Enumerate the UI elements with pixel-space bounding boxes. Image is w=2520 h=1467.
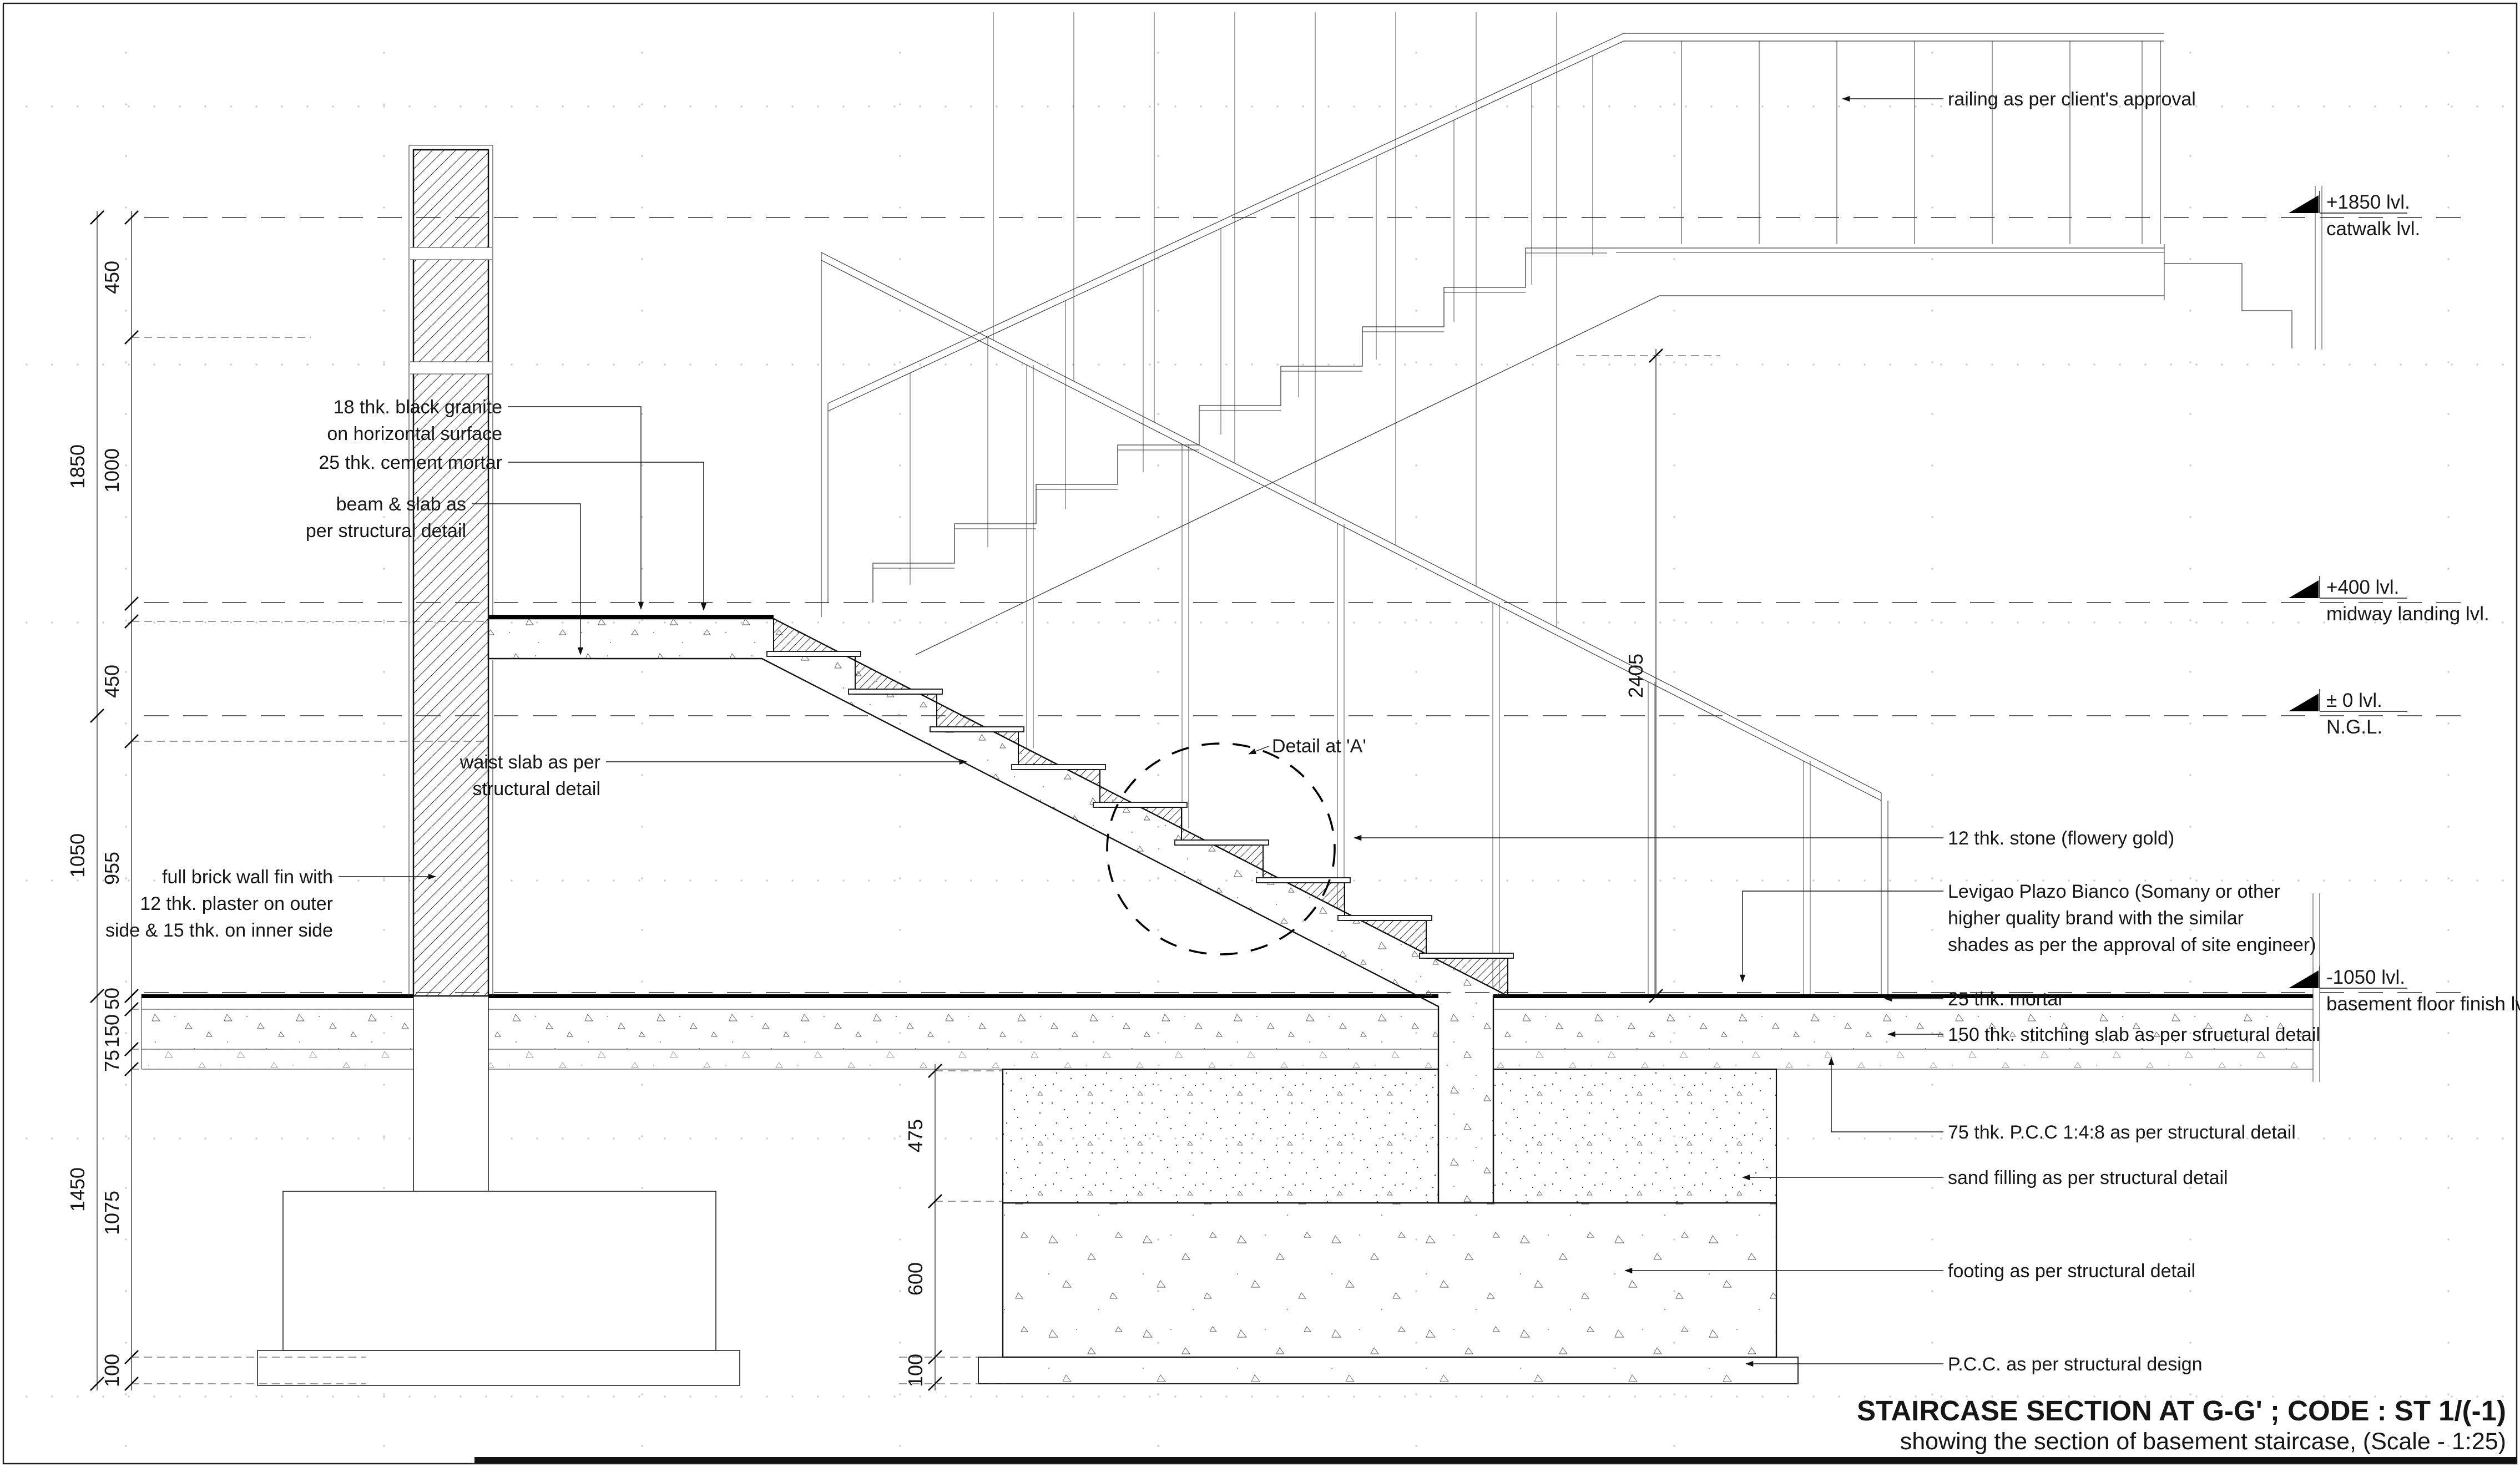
dim-955: 955 bbox=[100, 852, 123, 885]
waist-slab-label-2: structural detail bbox=[472, 778, 600, 800]
brick-wall-label-1: full brick wall fin with bbox=[162, 867, 333, 888]
level-midway-value: +400 lvl. bbox=[2326, 576, 2399, 598]
drawing-title: STAIRCASE SECTION AT G-G' ; CODE : ST 1/… bbox=[1857, 1395, 2506, 1426]
sand-filling-left bbox=[1003, 1069, 1438, 1203]
dim-1075: 1075 bbox=[100, 1191, 123, 1235]
dim-450-mid: 450 bbox=[100, 665, 123, 698]
sand-label: sand filling as per structural detail bbox=[1948, 1167, 2228, 1188]
dim-475: 475 bbox=[904, 1119, 927, 1152]
staircase-section-drawing: 1850 1050 1450 450 1000 450 955 50 150 7… bbox=[0, 0, 2520, 1467]
cement-mortar-label: 25 thk. cement mortar bbox=[319, 452, 502, 473]
level-basement-value: -1050 lvl. bbox=[2326, 967, 2405, 988]
dim-75: 75 bbox=[100, 1050, 123, 1072]
dim-1000: 1000 bbox=[100, 448, 123, 493]
level-catwalk-value: +1850 lvl. bbox=[2326, 191, 2410, 213]
dim-100-left: 100 bbox=[100, 1354, 123, 1387]
pcc75-label: 75 thk. P.C.C 1:4:8 as per structural de… bbox=[1948, 1122, 2296, 1143]
title-separator-bar bbox=[474, 1457, 2517, 1463]
dim-50: 50 bbox=[100, 988, 123, 1010]
dim-150: 150 bbox=[100, 1014, 123, 1048]
dim-1050: 1050 bbox=[66, 833, 89, 878]
stone-label: 12 thk. stone (flowery gold) bbox=[1948, 828, 2174, 849]
railing-label: railing as per client's approval bbox=[1948, 89, 2196, 110]
waist-slab-label-1: waist slab as per bbox=[459, 752, 600, 773]
dim-1450: 1450 bbox=[66, 1167, 89, 1212]
granite-label-2: on horizontal surface bbox=[327, 423, 502, 444]
dim-450-top: 450 bbox=[100, 261, 123, 294]
detail-a-label: Detail at 'A' bbox=[1272, 736, 1366, 757]
column-below-floor bbox=[413, 996, 488, 1191]
level-basement-name: basement floor finish lvl. bbox=[2326, 993, 2520, 1015]
brick-wall bbox=[409, 145, 493, 996]
footing bbox=[1003, 1203, 1776, 1357]
levigao-label-2: higher quality brand with the similar bbox=[1948, 908, 2244, 929]
level-catwalk-name: catwalk lvl. bbox=[2326, 218, 2420, 240]
mortar-label: 25 thk. mortar bbox=[1948, 989, 2064, 1010]
brick-wall-label-2: 12 thk. plaster on outer bbox=[140, 893, 333, 914]
levigao-label-3: shades as per the approval of site engin… bbox=[1948, 934, 2316, 955]
granite-label-1: 18 thk. black granite bbox=[334, 397, 502, 418]
footing-label: footing as per structural detail bbox=[1948, 1261, 2195, 1282]
wall-core-hatched bbox=[413, 150, 488, 996]
stitching-label: 150 thk. stitching slab as per structura… bbox=[1948, 1024, 2320, 1045]
dim-600: 600 bbox=[904, 1262, 927, 1296]
brick-wall-label-3: side & 15 thk. on inner side bbox=[105, 920, 333, 941]
dim-2405: 2405 bbox=[1624, 654, 1647, 698]
column-pedestal bbox=[283, 1191, 716, 1350]
level-ngl-value: ± 0 lvl. bbox=[2326, 690, 2382, 711]
pcc-base-slab bbox=[978, 1357, 1798, 1384]
sand-filling-right bbox=[1493, 1069, 1776, 1203]
column-base bbox=[257, 1350, 740, 1385]
drawing-sheet: 1850 1050 1450 450 1000 450 955 50 150 7… bbox=[0, 0, 2520, 1467]
dim-1850: 1850 bbox=[66, 444, 89, 489]
landing-granite-finish bbox=[488, 615, 774, 619]
level-ngl-name: N.G.L. bbox=[2326, 716, 2382, 738]
level-midway-name: midway landing lvl. bbox=[2326, 603, 2489, 625]
drawing-subtitle: showing the section of basement staircas… bbox=[1900, 1428, 2506, 1455]
levigao-label-1: Levigao Plazo Bianco (Somany or other bbox=[1948, 881, 2280, 902]
beam-slab-label-2: per structural detail bbox=[306, 520, 466, 542]
beam-slab-label-1: beam & slab as bbox=[336, 494, 466, 515]
pcc-design-label: P.C.C. as per structural design bbox=[1948, 1354, 2203, 1375]
dim-100-mid: 100 bbox=[904, 1354, 927, 1387]
